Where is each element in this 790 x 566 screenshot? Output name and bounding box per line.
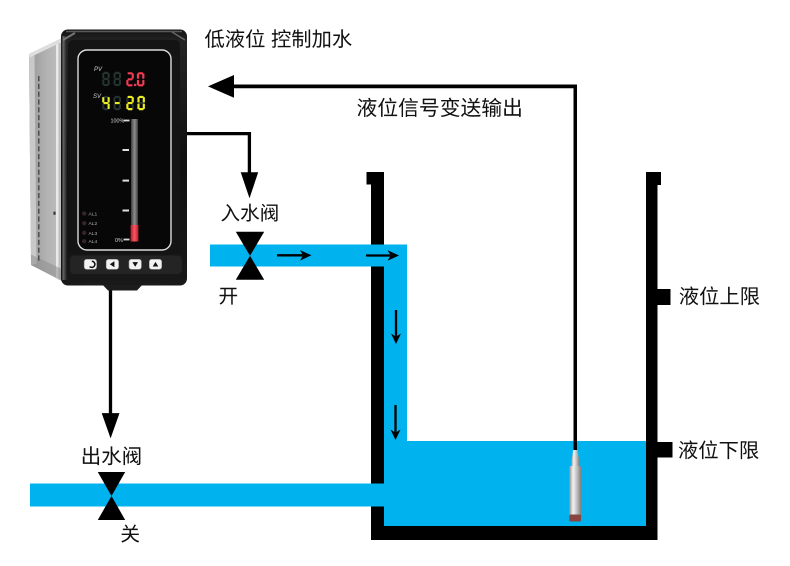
svg-text:100%: 100% [111, 119, 125, 125]
svg-text:PV: PV [94, 67, 103, 73]
svg-text:AL1: AL1 [89, 212, 98, 218]
svg-text:AL3: AL3 [89, 231, 98, 237]
svg-text:AL2: AL2 [89, 221, 98, 227]
svg-text:AL4: AL4 [89, 239, 98, 245]
svg-text:0%: 0% [115, 238, 123, 244]
svg-text:SV: SV [93, 94, 102, 100]
